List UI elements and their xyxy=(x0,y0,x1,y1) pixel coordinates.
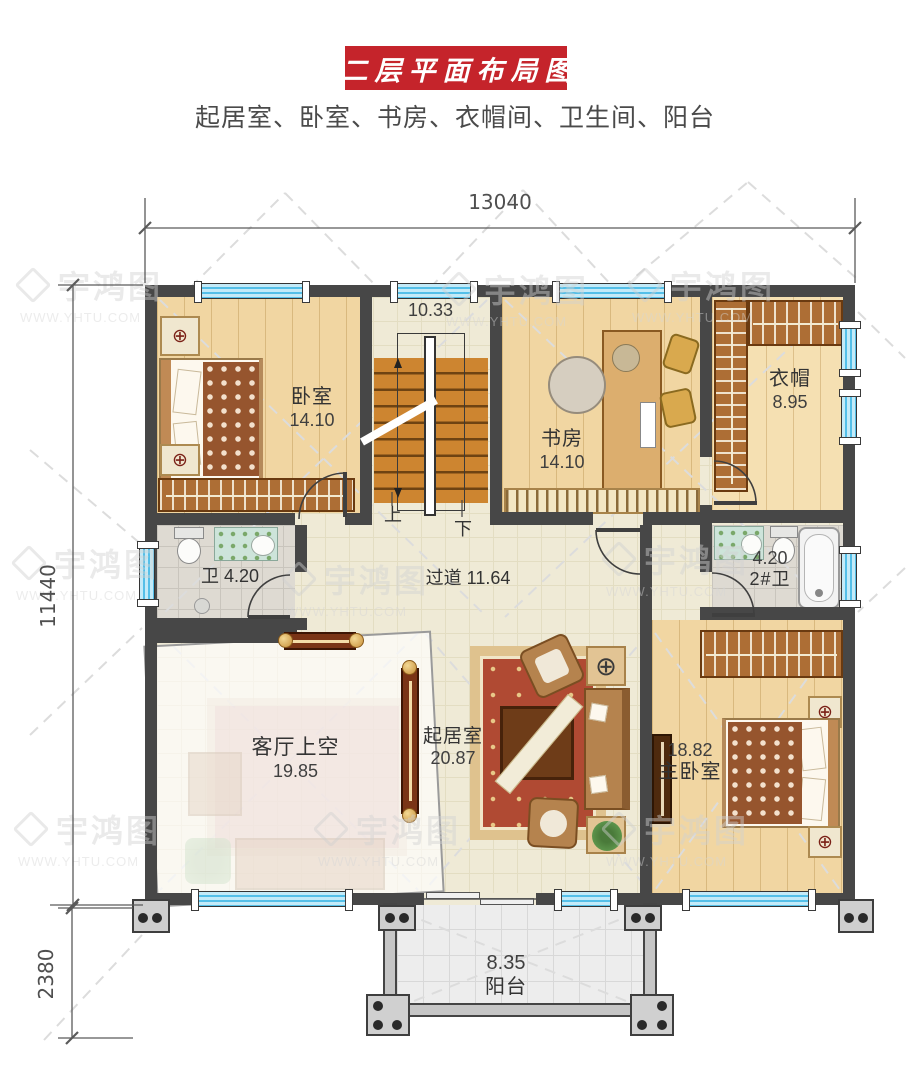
sofa xyxy=(584,688,630,810)
room-label-bath1: 卫 4.20 xyxy=(180,566,280,587)
wall xyxy=(157,618,307,630)
page-subtitle: 起居室、卧室、书房、衣帽间、卫生间、阳台 xyxy=(0,98,910,134)
balcony-column xyxy=(366,994,410,1036)
closet xyxy=(714,300,748,492)
column-marker xyxy=(132,899,170,933)
desk-globe xyxy=(612,344,640,372)
column-marker xyxy=(378,905,416,931)
watermark: 宇鸿图 WWW.YHTU.COM xyxy=(18,806,161,869)
plant xyxy=(592,821,622,851)
pillow xyxy=(172,369,201,416)
railing-cap xyxy=(402,808,417,823)
nightstand: ⊕ xyxy=(808,826,842,858)
window xyxy=(686,891,812,907)
plant-stand xyxy=(586,816,626,854)
window xyxy=(139,545,155,603)
bed-headboard xyxy=(828,720,838,826)
page-title: 二层平面布局图 xyxy=(334,49,579,88)
railing-cap xyxy=(349,633,364,648)
dimension-left: 11440 xyxy=(36,546,60,646)
floor-drain xyxy=(194,598,210,614)
room-label-bedroom: 卧室 14.10 xyxy=(262,386,362,431)
wall xyxy=(700,505,712,572)
window xyxy=(841,325,857,373)
balcony-wall xyxy=(383,1003,657,1017)
coffee-table xyxy=(500,706,574,780)
pillow xyxy=(589,703,609,723)
wall xyxy=(157,630,297,643)
room-label-master-bedroom: 18.82 主卧室 xyxy=(650,740,730,785)
window xyxy=(558,891,614,907)
room-label-family-room: 起居室 20.87 xyxy=(412,726,494,770)
window xyxy=(556,283,668,299)
sliding-door-panel xyxy=(426,892,480,899)
room-label-balcony: 8.35 阳台 xyxy=(456,952,556,999)
dimension-top: 13040 xyxy=(440,190,560,214)
wall xyxy=(640,525,652,893)
toilet xyxy=(174,527,204,565)
sliding-door-panel xyxy=(480,898,534,905)
railing-cap xyxy=(402,660,417,675)
wall xyxy=(345,513,372,525)
railing-cap xyxy=(278,633,293,648)
nightstand: ⊕ xyxy=(160,316,200,356)
stair-up-label: 上 xyxy=(380,505,406,526)
wall xyxy=(643,512,700,525)
table-runner xyxy=(495,694,584,794)
room-label-corridor: 过道 11.64 xyxy=(408,568,528,589)
desk xyxy=(602,330,662,512)
room-label-cloakroom: 衣帽 8.95 xyxy=(750,368,830,413)
room-label-bath2: 4.20 2#卫 xyxy=(735,548,805,590)
compass-icon: ⊕ xyxy=(172,325,188,348)
room-label-stairwell: 10.33 xyxy=(388,300,473,321)
window xyxy=(394,283,474,299)
wall xyxy=(490,297,502,525)
watermark: 宇鸿图 WWW.YHTU.COM xyxy=(20,262,163,325)
brand-logo-icon xyxy=(15,267,52,304)
compass-icon: ⊕ xyxy=(172,449,188,472)
wardrobe xyxy=(700,630,843,678)
column-marker xyxy=(838,899,874,933)
wardrobe xyxy=(158,478,355,512)
desk-chair xyxy=(548,356,606,414)
pillow xyxy=(589,775,608,794)
wall xyxy=(295,525,307,572)
monitor xyxy=(640,402,656,448)
column-marker xyxy=(624,905,662,931)
side-table-compass: ⊕ xyxy=(586,646,626,686)
wall xyxy=(700,297,712,457)
room-label-living-void: 客厅上空 19.85 xyxy=(228,736,363,782)
closet xyxy=(748,300,843,346)
drain xyxy=(815,589,823,597)
compass-icon: ⊕ xyxy=(817,831,833,854)
title-banner: 二层平面布局图 xyxy=(345,46,567,90)
balcony-column xyxy=(630,994,674,1036)
window xyxy=(841,393,857,441)
wall xyxy=(712,510,843,523)
vanity xyxy=(214,527,278,561)
nightstand: ⊕ xyxy=(160,444,200,476)
window xyxy=(195,891,349,907)
bookshelf xyxy=(504,488,700,514)
brand-logo-icon xyxy=(13,811,50,848)
pillow xyxy=(798,777,826,821)
bed-blanket xyxy=(203,362,259,476)
wall xyxy=(157,513,295,525)
railing xyxy=(284,632,356,650)
window xyxy=(198,283,306,299)
wall xyxy=(700,607,843,620)
wall xyxy=(502,512,593,525)
bed xyxy=(722,718,840,828)
armchair xyxy=(527,797,580,850)
window xyxy=(841,550,857,604)
dimension-left-bottom: 2380 xyxy=(34,924,58,1024)
compass-icon: ⊕ xyxy=(595,651,617,682)
room-label-study: 书房 14.10 xyxy=(522,428,602,473)
stair-down-label: 下 xyxy=(450,519,476,540)
bed-blanket xyxy=(728,722,802,824)
floor-plan-page: 二层平面布局图 起居室、卧室、书房、衣帽间、卫生间、阳台 13040 11440… xyxy=(0,0,910,1088)
stair-stringer xyxy=(424,336,436,516)
